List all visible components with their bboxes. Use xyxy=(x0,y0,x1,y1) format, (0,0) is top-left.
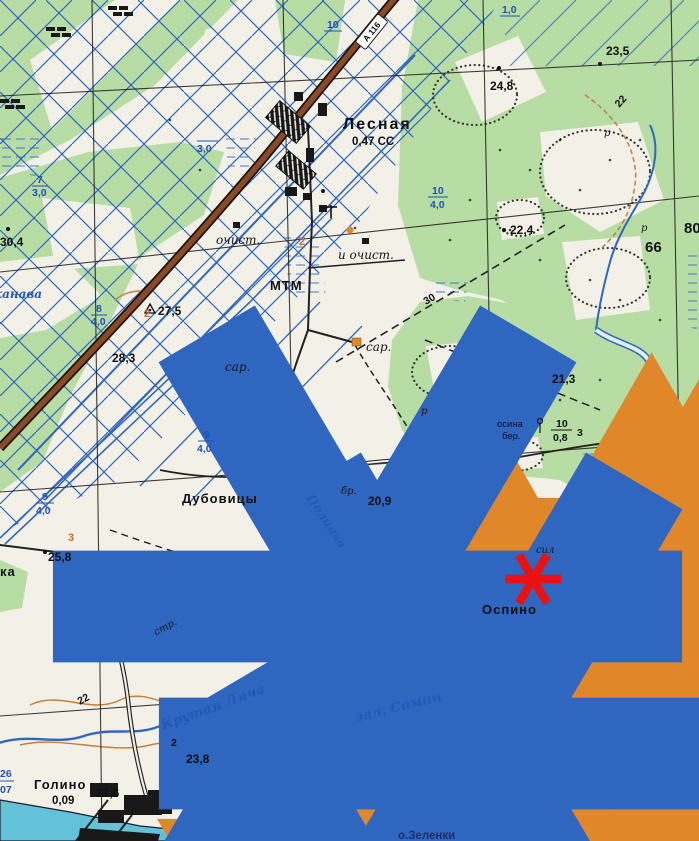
label-ber: бер. xyxy=(502,431,521,442)
forest-fraction-num: 10 xyxy=(556,418,568,430)
label-ford: бр. xyxy=(341,486,357,497)
fraction-den: 4,0 xyxy=(430,199,445,211)
elevation-28-3: 28,3 xyxy=(112,351,136,365)
label-mtm: МТМ xyxy=(270,278,303,293)
label-ochistnye-a: очист. xyxy=(216,233,260,247)
elevation-27-5: 27,5 xyxy=(158,304,182,318)
point-number-2-mid: 2 xyxy=(299,236,305,248)
label-spring-b: р xyxy=(641,223,648,234)
fraction-num: 7 xyxy=(37,174,43,186)
fraction-den: 3,0 xyxy=(197,143,212,155)
label-saray-a: сар. xyxy=(225,360,250,374)
map-canvas[interactable]: А 116 xyxy=(0,0,699,841)
fraction-den: 4,0 xyxy=(91,316,106,328)
elevation-24-8: 24,8 xyxy=(490,79,514,93)
fraction-den: 07 xyxy=(0,784,12,796)
elevation-23-5: 23,5 xyxy=(606,44,630,58)
point-number-2-left: 2 xyxy=(144,308,150,320)
label-ochistnye-b: и очист. xyxy=(338,248,394,262)
fraction-den: 4,0 xyxy=(197,443,212,455)
fraction-num: 8 xyxy=(96,303,102,315)
fraction-num: 9 xyxy=(204,429,210,441)
barn-symbol xyxy=(352,338,361,346)
fraction-num: 10 xyxy=(327,19,339,31)
water-label-island-zelenki: о.Зеленки xyxy=(398,830,455,841)
label-spring-c: р xyxy=(421,406,428,417)
elevation-25-8: 25,8 xyxy=(48,550,72,564)
fraction-num: 9 xyxy=(42,491,48,503)
fraction-den: 3,0 xyxy=(32,187,47,199)
point-number-2-golino: 2 xyxy=(171,737,177,749)
settlement-label-ospino: Оспино xyxy=(482,602,537,617)
elevation-21-3: 21,3 xyxy=(552,372,576,386)
grid-number-66: 66 xyxy=(645,239,662,256)
fraction-num: 10 xyxy=(432,185,444,197)
settlement-info-lesnaya: 0,47 СС xyxy=(352,136,394,148)
water-label-canal: канава xyxy=(0,287,42,301)
grid-number-80: 80 xyxy=(684,220,699,237)
point-number-3-left: 3 xyxy=(68,532,74,544)
label-spring-a: р xyxy=(604,128,611,139)
elevation-20-9: 20,9 xyxy=(368,494,392,508)
forest-spacing: 3 xyxy=(577,427,583,439)
settlement-label-lesnaya: Лесная xyxy=(343,116,412,133)
settlement-label-partial: ка xyxy=(0,564,16,579)
label-saray-b: сар. xyxy=(366,340,391,354)
topographic-map[interactable]: А 116 xyxy=(0,0,699,841)
fraction-num: 26 xyxy=(0,768,12,780)
label-osina: осина xyxy=(497,419,524,430)
settlement-info-golino: 0,09 xyxy=(52,795,74,807)
forest-fraction-den: 0,8 xyxy=(553,432,568,444)
fraction-num: 1,0 xyxy=(502,4,517,16)
settlement-label-dubovitsy: Дубовицы xyxy=(182,491,258,506)
tank-symbol xyxy=(347,227,354,234)
fraction-den: 4,0 xyxy=(36,505,51,517)
settlement-label-golino: Голино xyxy=(34,777,86,792)
elevation-21-6: 21,6 xyxy=(96,786,120,800)
elevation-22-4: 22,4 xyxy=(510,223,534,237)
elevation-30-4: 30,4 xyxy=(0,235,24,249)
elevation-23-8: 23,8 xyxy=(186,752,210,766)
